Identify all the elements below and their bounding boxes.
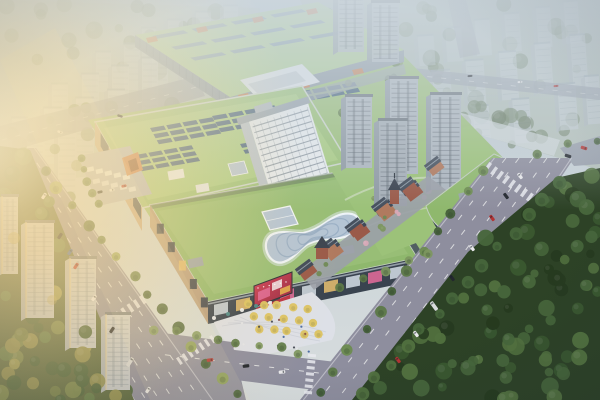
aerial-rendering bbox=[0, 0, 600, 400]
vignette bbox=[0, 0, 600, 400]
